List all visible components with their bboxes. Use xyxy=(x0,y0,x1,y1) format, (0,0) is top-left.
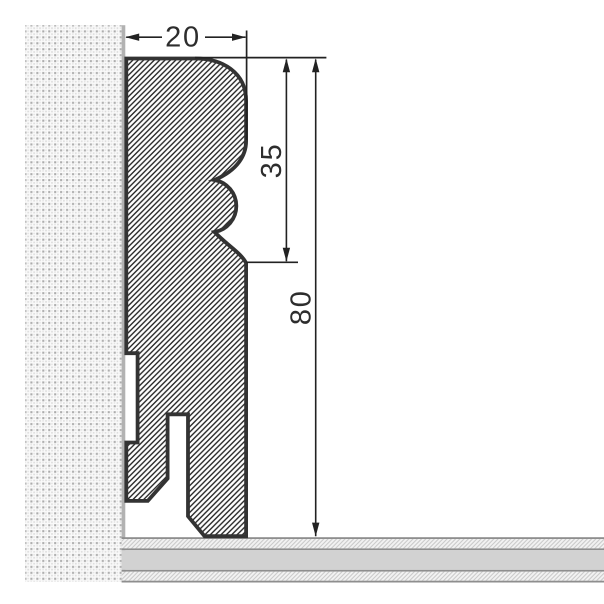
svg-text:20: 20 xyxy=(165,22,201,54)
svg-text:80: 80 xyxy=(286,289,318,325)
svg-text:35: 35 xyxy=(256,142,288,178)
